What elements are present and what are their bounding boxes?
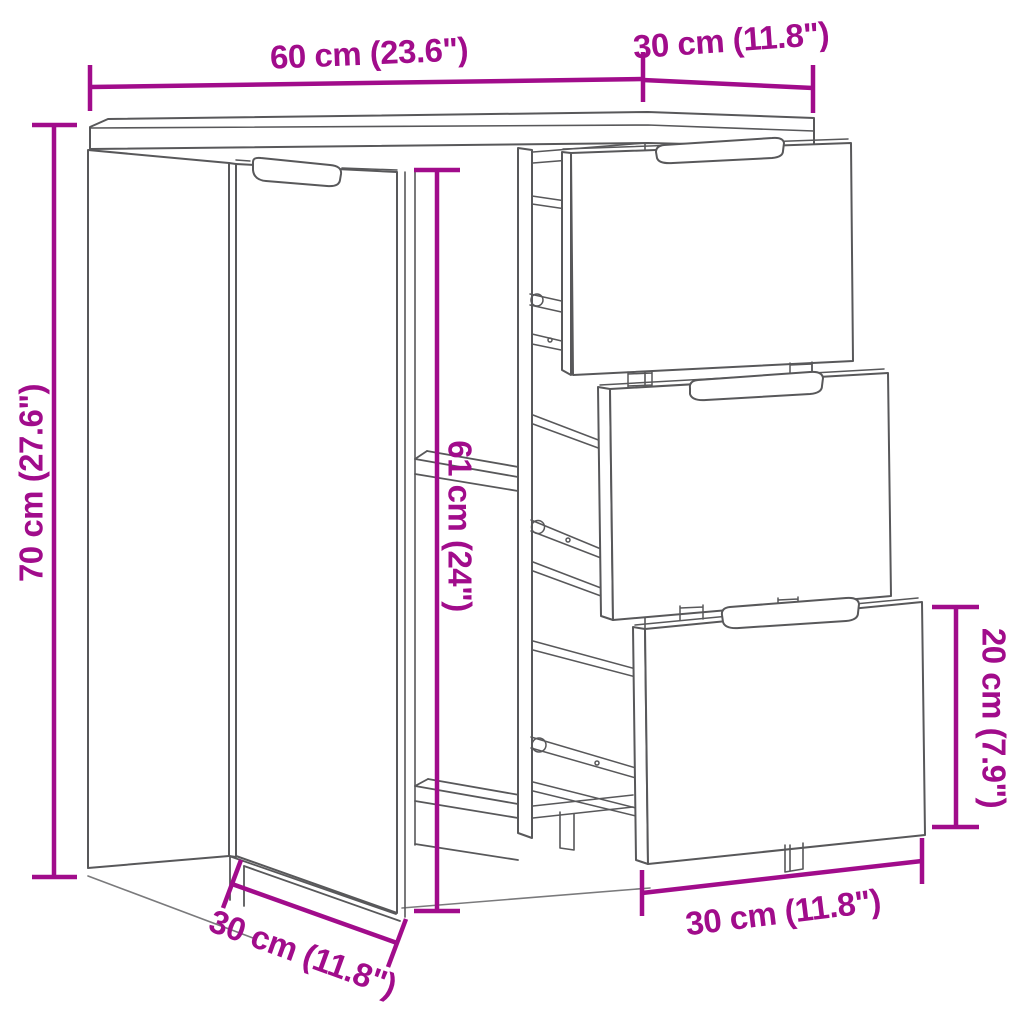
dimension-depth-top-line (643, 65, 813, 113)
cabinet-door (236, 164, 397, 913)
drawer-2 (598, 369, 891, 620)
cabinet-line-art (0, 0, 1024, 1024)
cabinet-left-side-panel (88, 150, 229, 868)
dimension-label-width: 60 cm (23.6") (269, 32, 468, 74)
dimension-label-interior-height: 61 cm (24") (444, 440, 477, 612)
door-handle (253, 158, 341, 186)
dimension-diagram: 60 cm (23.6") 30 cm (11.8") 70 cm (27.6"… (0, 0, 1024, 1024)
dimension-label-drawer-height: 20 cm (7.9") (978, 628, 1011, 808)
compartment-floor (415, 779, 531, 860)
center-partition (518, 148, 532, 838)
dimension-drawer-height-line (932, 607, 979, 827)
drawer-slide-1 (530, 196, 566, 351)
door-edge (229, 163, 236, 857)
drawer-slide-2 (531, 415, 601, 596)
drawer-1 (562, 138, 853, 375)
dimension-label-height: 70 cm (27.6") (15, 384, 48, 582)
drawer-3 (633, 598, 925, 864)
drawer-slide-3 (531, 641, 636, 816)
